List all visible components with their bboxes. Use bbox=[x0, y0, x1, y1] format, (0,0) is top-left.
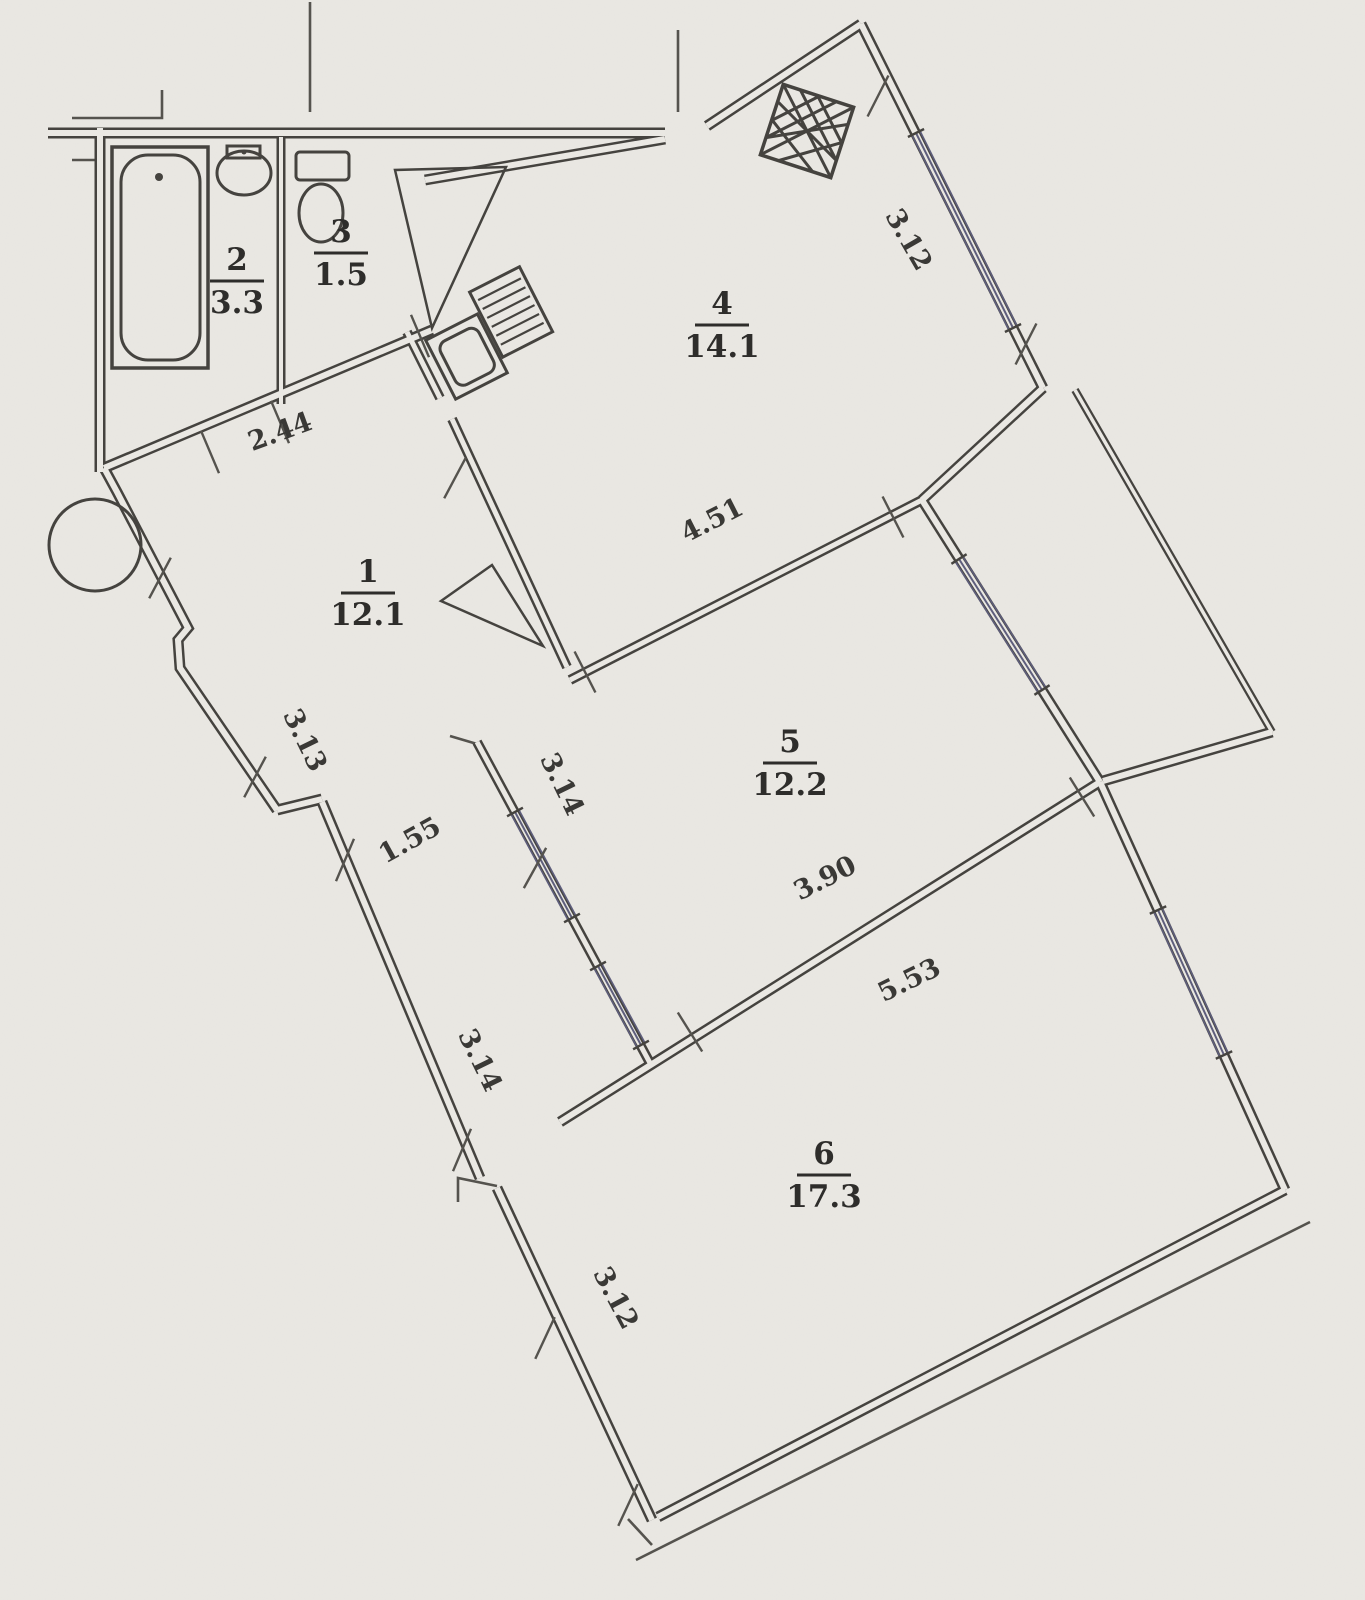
room-area: 17.3 bbox=[786, 1179, 862, 1215]
room-area: 12.1 bbox=[330, 597, 406, 633]
room-number: 1 bbox=[357, 554, 379, 590]
room-number: 5 bbox=[779, 724, 801, 760]
room-area: 12.2 bbox=[752, 767, 828, 803]
floor-plan-page: 112.123.331.5414.1512.2617.32.443.131.55… bbox=[0, 0, 1365, 1600]
room-number: 6 bbox=[813, 1136, 835, 1172]
room-number: 3 bbox=[330, 214, 352, 250]
room-area: 14.1 bbox=[684, 329, 760, 365]
room-number: 4 bbox=[711, 286, 733, 322]
room-area: 3.3 bbox=[210, 285, 264, 321]
paper-noise-texture bbox=[0, 0, 1365, 1600]
room-area: 1.5 bbox=[314, 257, 368, 293]
floor-plan-drawing: 112.123.331.5414.1512.2617.32.443.131.55… bbox=[0, 0, 1365, 1600]
room-number: 2 bbox=[226, 242, 248, 278]
